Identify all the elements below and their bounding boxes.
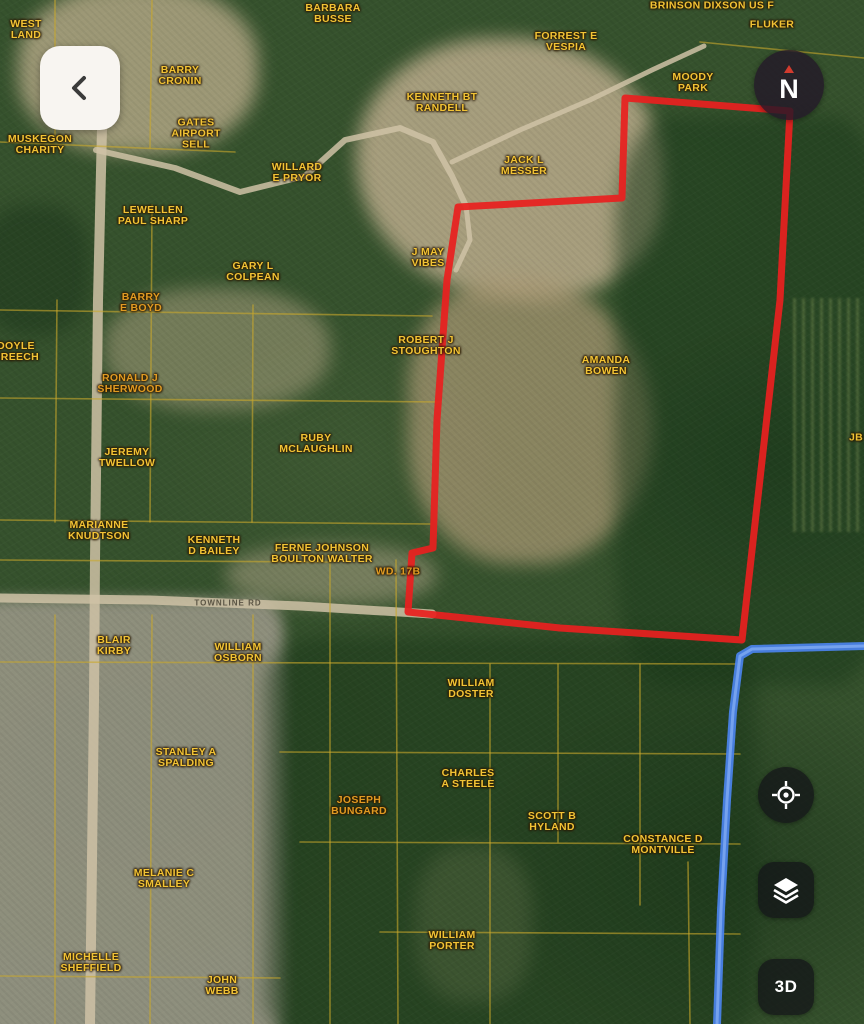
road-line (96, 128, 466, 206)
parcel-boundary-line (300, 842, 740, 844)
road-line (90, 128, 102, 1024)
parcel-boundary-line (150, 615, 152, 1024)
road-line (0, 598, 432, 614)
view-3d-button[interactable]: 3D (758, 959, 814, 1015)
parcel-boundary-line (0, 398, 440, 402)
locate-button[interactable] (758, 767, 814, 823)
crosshair-icon (771, 780, 801, 810)
parcel-boundary-line (0, 560, 330, 562)
selected-parcel-boundary[interactable] (408, 98, 790, 640)
parcel-boundary-line (0, 520, 430, 524)
parcel-boundary-line (150, 205, 152, 522)
parcel-boundary-line (55, 300, 57, 522)
parcel-boundary-line (0, 976, 280, 978)
map-lines-svg (0, 0, 864, 1024)
map-app-screen: WESTLANDMUSKEGONCHARITYBARBARABUSSEBRINS… (0, 0, 864, 1024)
back-button[interactable] (40, 46, 120, 130)
parcel-boundary-line (0, 310, 432, 316)
parcel-boundary-line (0, 662, 740, 664)
parcel-boundary-line (252, 305, 253, 522)
compass-button[interactable]: N (754, 50, 824, 120)
layers-button[interactable] (758, 862, 814, 918)
parcel-boundary-line (280, 752, 740, 754)
chevron-left-icon (65, 71, 95, 105)
north-needle-icon (784, 65, 794, 73)
parcel-boundary-line (688, 862, 690, 1024)
view-3d-label: 3D (775, 977, 798, 997)
layers-icon (771, 875, 801, 905)
compass-label: N (779, 74, 799, 105)
parcel-boundary-line (380, 932, 740, 934)
parcel-boundary-line (396, 560, 398, 1024)
parcel-boundary-line (150, 0, 152, 148)
parcel-boundary-line (0, 142, 235, 152)
